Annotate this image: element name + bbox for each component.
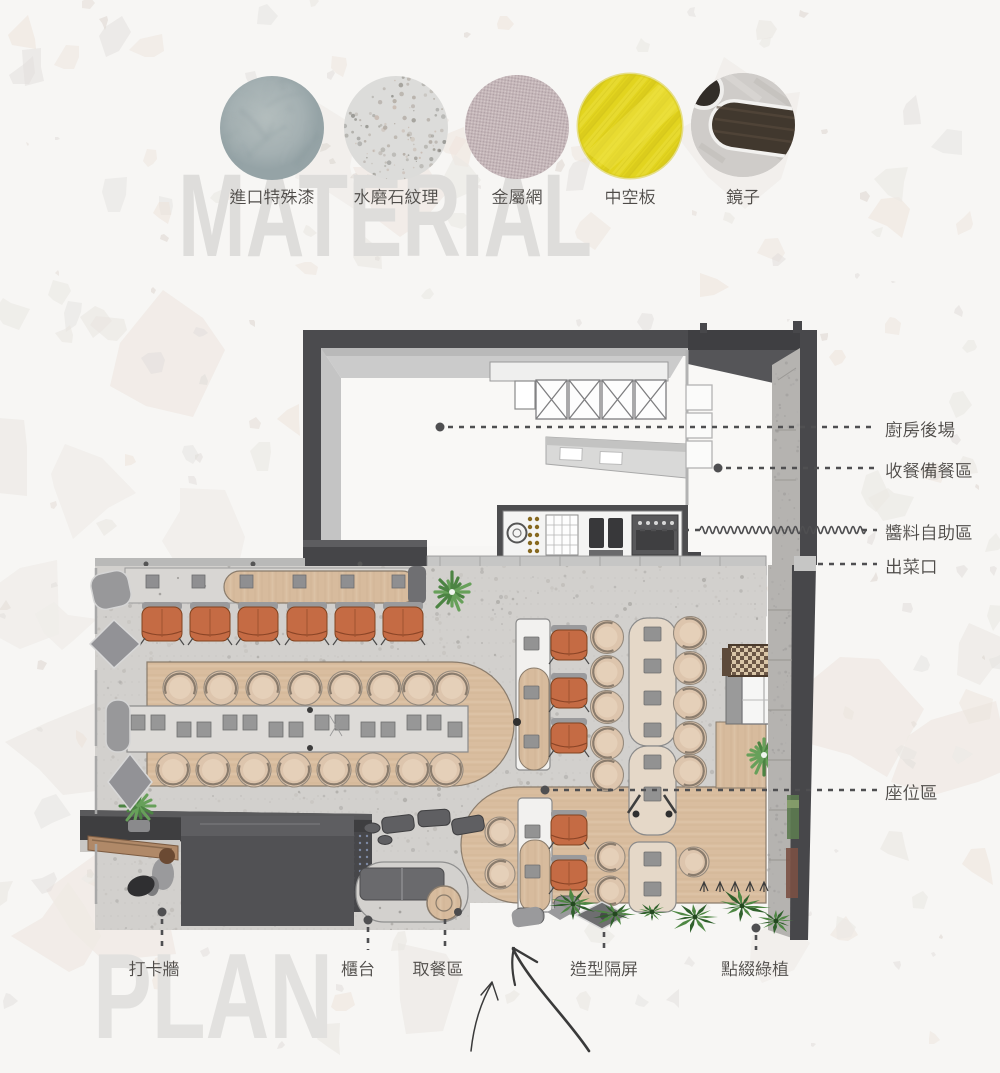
svg-text:PLAN: PLAN xyxy=(93,928,333,1064)
